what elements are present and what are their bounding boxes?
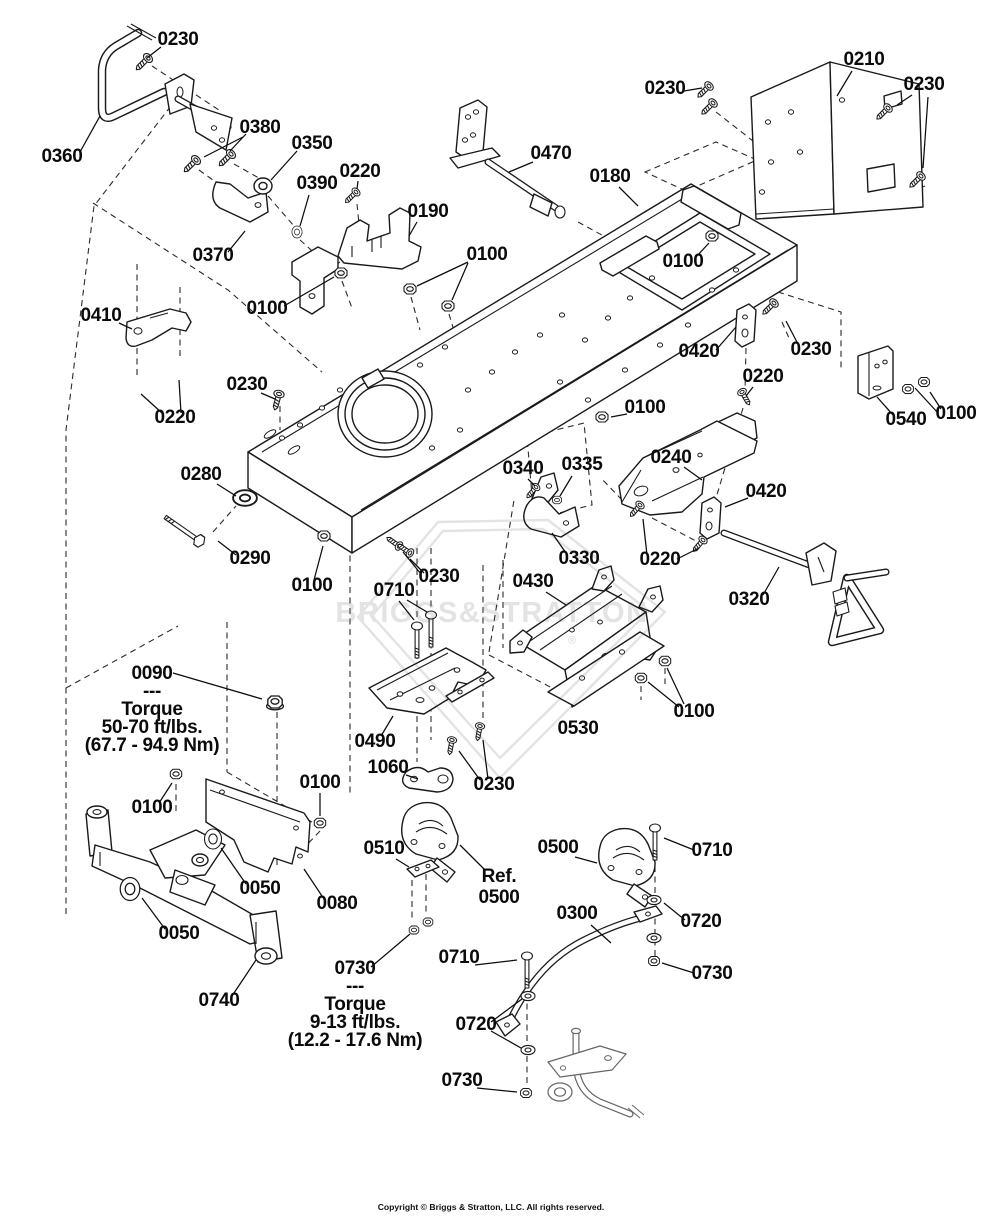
nut-icon — [404, 284, 416, 294]
part-0320-bar — [724, 533, 886, 642]
part-label-0470: 0470 — [530, 143, 571, 164]
part-label-0510: 0510 — [363, 838, 404, 859]
part-label-0210: 0210 — [843, 49, 884, 70]
part-label-0100-i: 0100 — [131, 797, 172, 818]
part-label-ref-0500: Ref.0500 — [478, 866, 519, 908]
hex-bolt-icon — [162, 512, 207, 549]
part-label-0330: 0330 — [558, 548, 599, 569]
exploded-parts-diagram: BRIGGS&STRATTON ® 0230036003800350039002… — [0, 0, 982, 1224]
part-label-0230-b: 0230 — [644, 78, 685, 99]
leader-line-0230-b — [684, 88, 702, 91]
part-label-0740: 0740 — [198, 990, 239, 1011]
part-label-0290: 0290 — [229, 548, 270, 569]
nut-icon — [442, 301, 454, 311]
part-label-0100-a: 0100 — [466, 244, 507, 265]
leader-line-0280 — [217, 484, 236, 496]
part-label-0100-g: 0100 — [673, 701, 714, 722]
leader-line-0335 — [560, 476, 572, 496]
leader-line-note-0730 — [371, 934, 410, 967]
bushing-icon — [120, 878, 140, 901]
washer-icon — [647, 933, 661, 942]
nut-icon — [409, 926, 419, 934]
part-label-0540: 0540 — [885, 409, 926, 430]
parts-diagram-page: BRIGGS&STRATTON ® 0230036003800350039002… — [0, 0, 982, 1224]
nut-icon — [335, 268, 347, 278]
nut-icon — [919, 378, 930, 387]
nut-icon — [521, 1089, 532, 1098]
watermark-text: BRIGGS&STRATTON — [335, 597, 648, 629]
part-label-0100-d: 0100 — [291, 575, 332, 596]
bushing-icon — [292, 226, 302, 238]
part-label-0420-b: 0420 — [745, 481, 786, 502]
leader-line-0710-b — [664, 838, 694, 850]
nut-icon — [170, 769, 181, 779]
nut-icon — [553, 496, 562, 504]
part-0500-cam — [599, 829, 655, 907]
part-label-1060: 1060 — [367, 757, 408, 778]
screw-icon — [342, 186, 361, 205]
part-label-0100-b: 0100 — [246, 298, 287, 319]
part-0350-grommet — [254, 178, 272, 194]
leader-line-0100-a — [417, 262, 468, 286]
part-label-0500: 0500 — [537, 837, 578, 858]
part-label-0530: 0530 — [557, 718, 598, 739]
part-label-0410: 0410 — [80, 305, 121, 326]
part-label-0280: 0280 — [180, 464, 221, 485]
nut-icon — [635, 673, 646, 683]
part-label-0240: 0240 — [650, 447, 691, 468]
part-label-0360: 0360 — [41, 146, 82, 167]
part-1060-lever — [403, 768, 453, 793]
part-label-note-0730: 0730---Torque9-13 ft/lbs.(12.2 - 17.6 Nm… — [288, 958, 423, 1051]
part-label-0230-f: 0230 — [790, 339, 831, 360]
part-label-0220-c: 0220 — [742, 366, 783, 387]
nut-icon — [423, 918, 433, 926]
part-label-0350: 0350 — [291, 133, 332, 154]
part-label-0100-c: 0100 — [662, 251, 703, 272]
part-label-0340: 0340 — [502, 458, 543, 479]
parts-artwork — [86, 24, 929, 1118]
part-label-0335: 0335 — [561, 454, 603, 475]
part-label-0230-e: 0230 — [418, 566, 459, 587]
part-label-0050-b: 0050 — [158, 923, 199, 944]
screw-icon — [445, 736, 457, 755]
part-label-0710-a: 0710 — [373, 580, 414, 601]
part-label-0220-a: 0220 — [339, 161, 380, 182]
screw-icon — [698, 97, 718, 117]
nut-icon — [903, 385, 914, 394]
leader-line-0730-b — [477, 1088, 517, 1092]
part-label-0230-c: 0230 — [903, 74, 944, 95]
part-label-0390: 0390 — [296, 173, 337, 194]
part-label-0490: 0490 — [354, 731, 395, 752]
part-label-0100-h: 0100 — [299, 772, 340, 793]
part-label-0100-e: 0100 — [624, 397, 665, 418]
leader-line-0220-c — [746, 387, 753, 396]
part-label-0370: 0370 — [192, 245, 233, 266]
part-label-note-0090: 0090---Torque50-70 ft/lbs.(67.7 - 94.9 N… — [85, 663, 220, 756]
leader-line-0220-a — [357, 181, 358, 189]
leader-line-0350 — [271, 151, 297, 180]
leader-line-0510 — [396, 859, 409, 867]
leader-line-0470 — [509, 162, 533, 172]
leader-line-0390 — [300, 195, 309, 226]
part-label-0430: 0430 — [512, 571, 553, 592]
part-label-0730-a: 0730 — [691, 963, 732, 984]
leader-line-0230-c — [923, 97, 928, 168]
washer-icon — [521, 991, 535, 1000]
part-bracket-upper — [292, 247, 338, 314]
leader-line-0730-a — [662, 963, 694, 973]
screw-icon — [270, 389, 285, 411]
part-label-0180: 0180 — [589, 166, 630, 187]
nut-icon — [596, 412, 608, 422]
part-label-0230-g: 0230 — [473, 774, 514, 795]
screw-icon — [216, 148, 238, 170]
part-0080-plate — [206, 779, 310, 872]
part-label-0730-b: 0730 — [441, 1070, 482, 1091]
part-label-0320: 0320 — [728, 589, 769, 610]
nut-icon — [659, 656, 670, 666]
part-0300-link — [496, 906, 662, 1036]
watermark-registered-mark: ® — [568, 635, 576, 647]
part-spindle-reference — [548, 1028, 644, 1118]
part-label-0100-f: 0100 — [935, 403, 976, 424]
part-label-0050-a: 0050 — [239, 878, 280, 899]
part-label-0420-a: 0420 — [678, 341, 719, 362]
bushing-icon — [205, 829, 222, 849]
part-0210-bracket — [751, 62, 923, 219]
part-label-0710-b: 0710 — [691, 840, 732, 861]
washer-icon — [521, 1045, 535, 1054]
part-label-0230-d: 0230 — [226, 374, 267, 395]
part-label-0380: 0380 — [239, 117, 280, 138]
part-label-0230-a: 0230 — [157, 29, 198, 50]
washer-icon — [647, 895, 661, 904]
part-label-0190: 0190 — [407, 201, 448, 222]
leader-line-0710-c — [475, 960, 517, 965]
copyright-text: Copyright © Briggs & Stratton, LLC. All … — [378, 1202, 605, 1212]
part-0540-bracket — [858, 346, 893, 399]
leader-line-0360 — [80, 116, 100, 152]
part-0410-latch — [126, 309, 191, 346]
part-label-0720-a: 0720 — [680, 911, 721, 932]
part-label-0710-c: 0710 — [438, 947, 479, 968]
nut-icon — [706, 231, 718, 241]
part-0420-link-upper — [735, 304, 756, 347]
part-0510-plate — [407, 860, 439, 877]
part-label-0080: 0080 — [316, 893, 357, 914]
nut-icon — [649, 957, 660, 966]
leader-line-0180 — [619, 187, 638, 206]
nut-icon — [314, 818, 325, 828]
part-label-0300: 0300 — [556, 903, 597, 924]
nut-icon — [318, 531, 330, 541]
leader-line-note-0090 — [173, 673, 262, 699]
part-label-0220-d: 0220 — [639, 549, 680, 570]
part-label-0720-b: 0720 — [455, 1014, 496, 1035]
flange-nut-icon — [267, 696, 284, 710]
screw-icon — [694, 80, 714, 100]
part-0420-link-lower — [700, 497, 721, 539]
washer-icon — [233, 490, 257, 506]
part-label-0220-b: 0220 — [154, 407, 195, 428]
screw-icon — [181, 154, 203, 176]
